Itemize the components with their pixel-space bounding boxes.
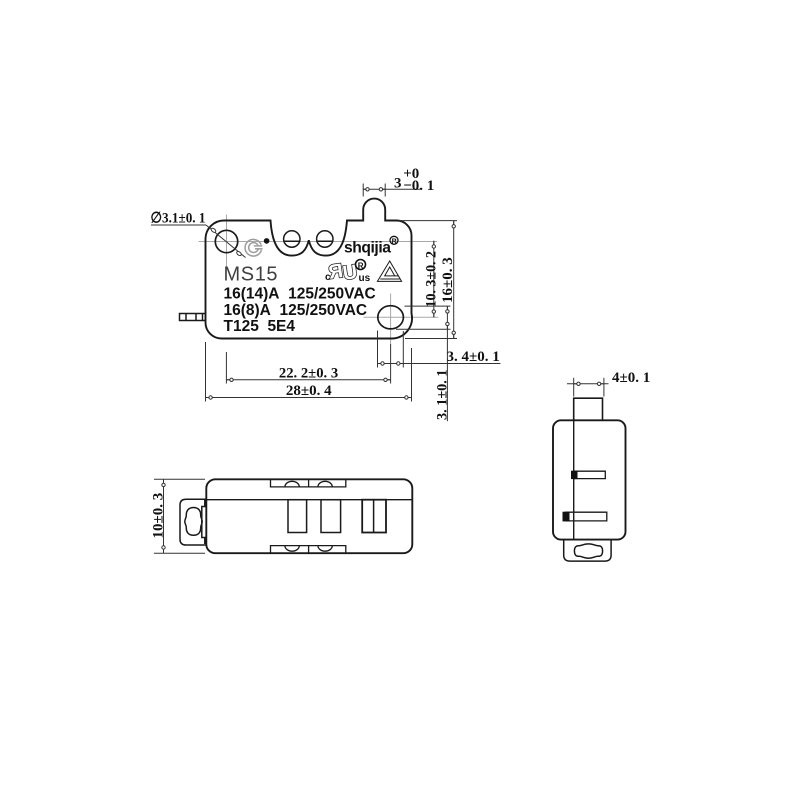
svg-text:−0. 1: −0. 1 (403, 178, 434, 194)
svg-text:us: us (359, 273, 371, 284)
svg-text:28±0. 4: 28±0. 4 (286, 383, 332, 399)
svg-text:22. 2±0. 3: 22. 2±0. 3 (279, 365, 338, 381)
svg-text:3. 1±0. 1: 3. 1±0. 1 (435, 370, 451, 421)
svg-text:10. 3±0. 2: 10. 3±0. 2 (423, 251, 439, 308)
svg-text:10±0. 3: 10±0. 3 (151, 493, 167, 539)
svg-text:3: 3 (394, 176, 402, 192)
svg-text:shqijia: shqijia (344, 239, 391, 256)
svg-text:16(8)A 125/250VAC: 16(8)A 125/250VAC (224, 302, 368, 319)
svg-text:4±0. 1: 4±0. 1 (612, 370, 650, 386)
svg-text:∅3.1±0. 1: ∅3.1±0. 1 (151, 211, 206, 227)
svg-text:R: R (392, 238, 397, 245)
svg-text:c: c (325, 272, 331, 283)
svg-text:16±0. 3: 16±0. 3 (440, 257, 456, 303)
svg-text:T125 5E4: T125 5E4 (224, 318, 296, 335)
svg-text:3. 4±0. 1: 3. 4±0. 1 (447, 349, 500, 365)
svg-text:MS15: MS15 (224, 264, 279, 286)
svg-text:R: R (358, 261, 364, 270)
svg-text:16(14)A 125/250VAC: 16(14)A 125/250VAC (224, 286, 376, 303)
